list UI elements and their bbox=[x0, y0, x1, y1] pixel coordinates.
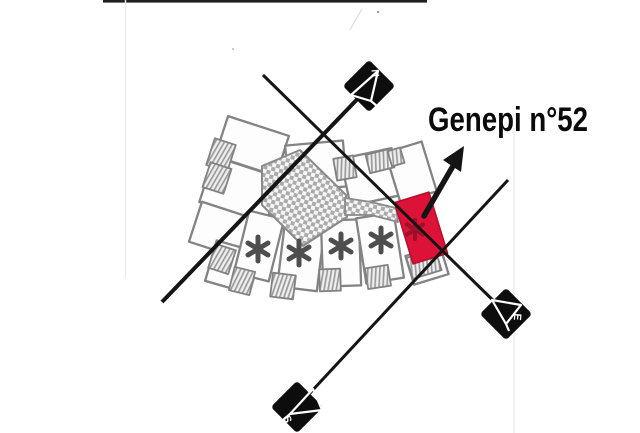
compass-letter-north: N bbox=[369, 69, 382, 78]
roof-hatch bbox=[270, 273, 296, 300]
site-plan-page: N E S Genepi n°52 bbox=[0, 0, 640, 433]
site-plan-canvas: N E S Genepi n°52 bbox=[0, 0, 640, 433]
scan-speck-dot bbox=[377, 11, 379, 13]
annotation-label: Genepi n°52 bbox=[428, 101, 588, 139]
scan-top-border bbox=[103, 0, 427, 3]
roof-hatch bbox=[333, 155, 357, 180]
roof-hatch bbox=[319, 269, 341, 292]
scan-speck-dot bbox=[232, 48, 234, 50]
compass-letter-east: E bbox=[511, 313, 524, 321]
building-plan bbox=[189, 116, 449, 299]
roof-hatch bbox=[229, 267, 255, 295]
scan-speck-line bbox=[350, 9, 362, 30]
roof-hatch bbox=[365, 265, 391, 289]
annotation: Genepi n°52 bbox=[424, 101, 588, 216]
